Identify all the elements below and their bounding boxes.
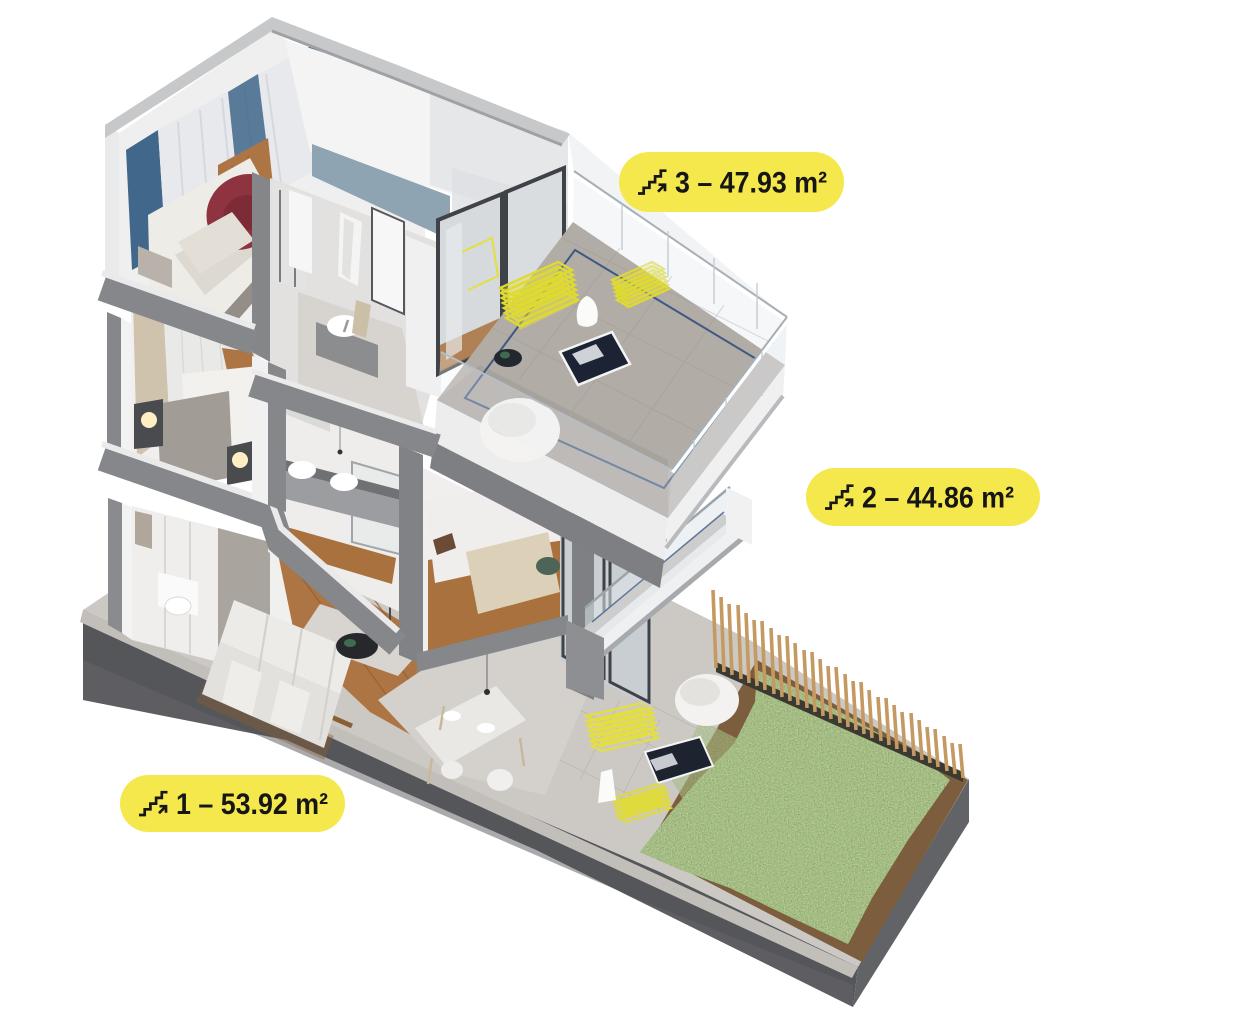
svg-text:3 – 47.93 m²: 3 – 47.93 m² — [675, 167, 827, 200]
svg-text:1 – 53.92 m²: 1 – 53.92 m² — [176, 788, 328, 821]
svg-text:2 – 44.86 m²: 2 – 44.86 m² — [862, 482, 1014, 515]
